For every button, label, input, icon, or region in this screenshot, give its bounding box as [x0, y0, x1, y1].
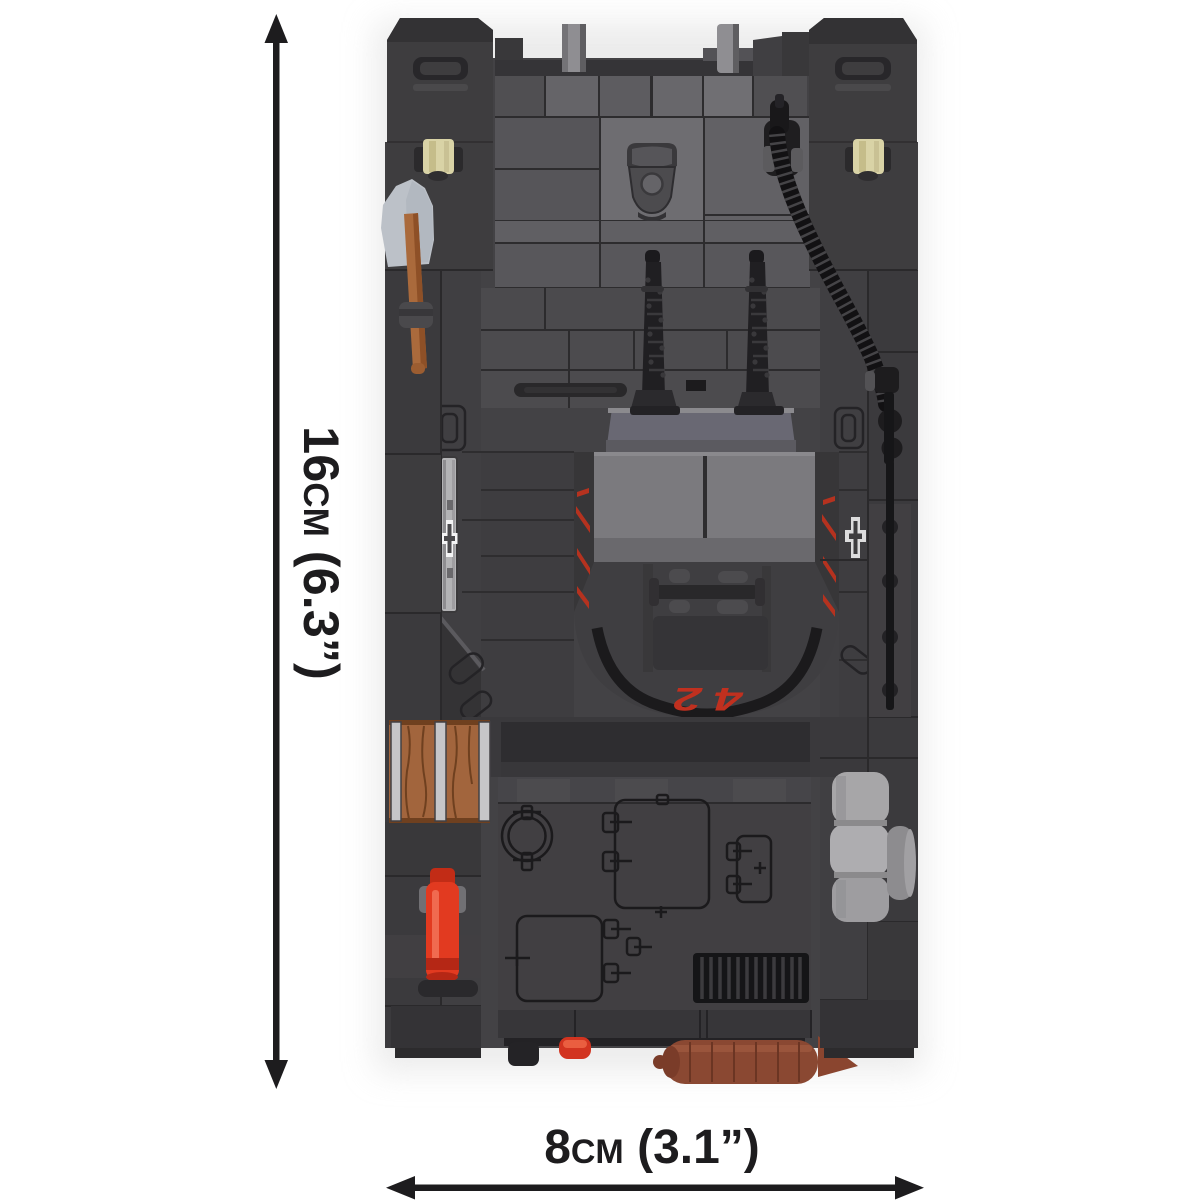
svg-text:42: 42 [661, 680, 744, 716]
svg-text:8cm (3.1”): 8cm (3.1”) [544, 1121, 760, 1174]
svg-text:16cm (6.3”): 16cm (6.3”) [293, 426, 350, 680]
